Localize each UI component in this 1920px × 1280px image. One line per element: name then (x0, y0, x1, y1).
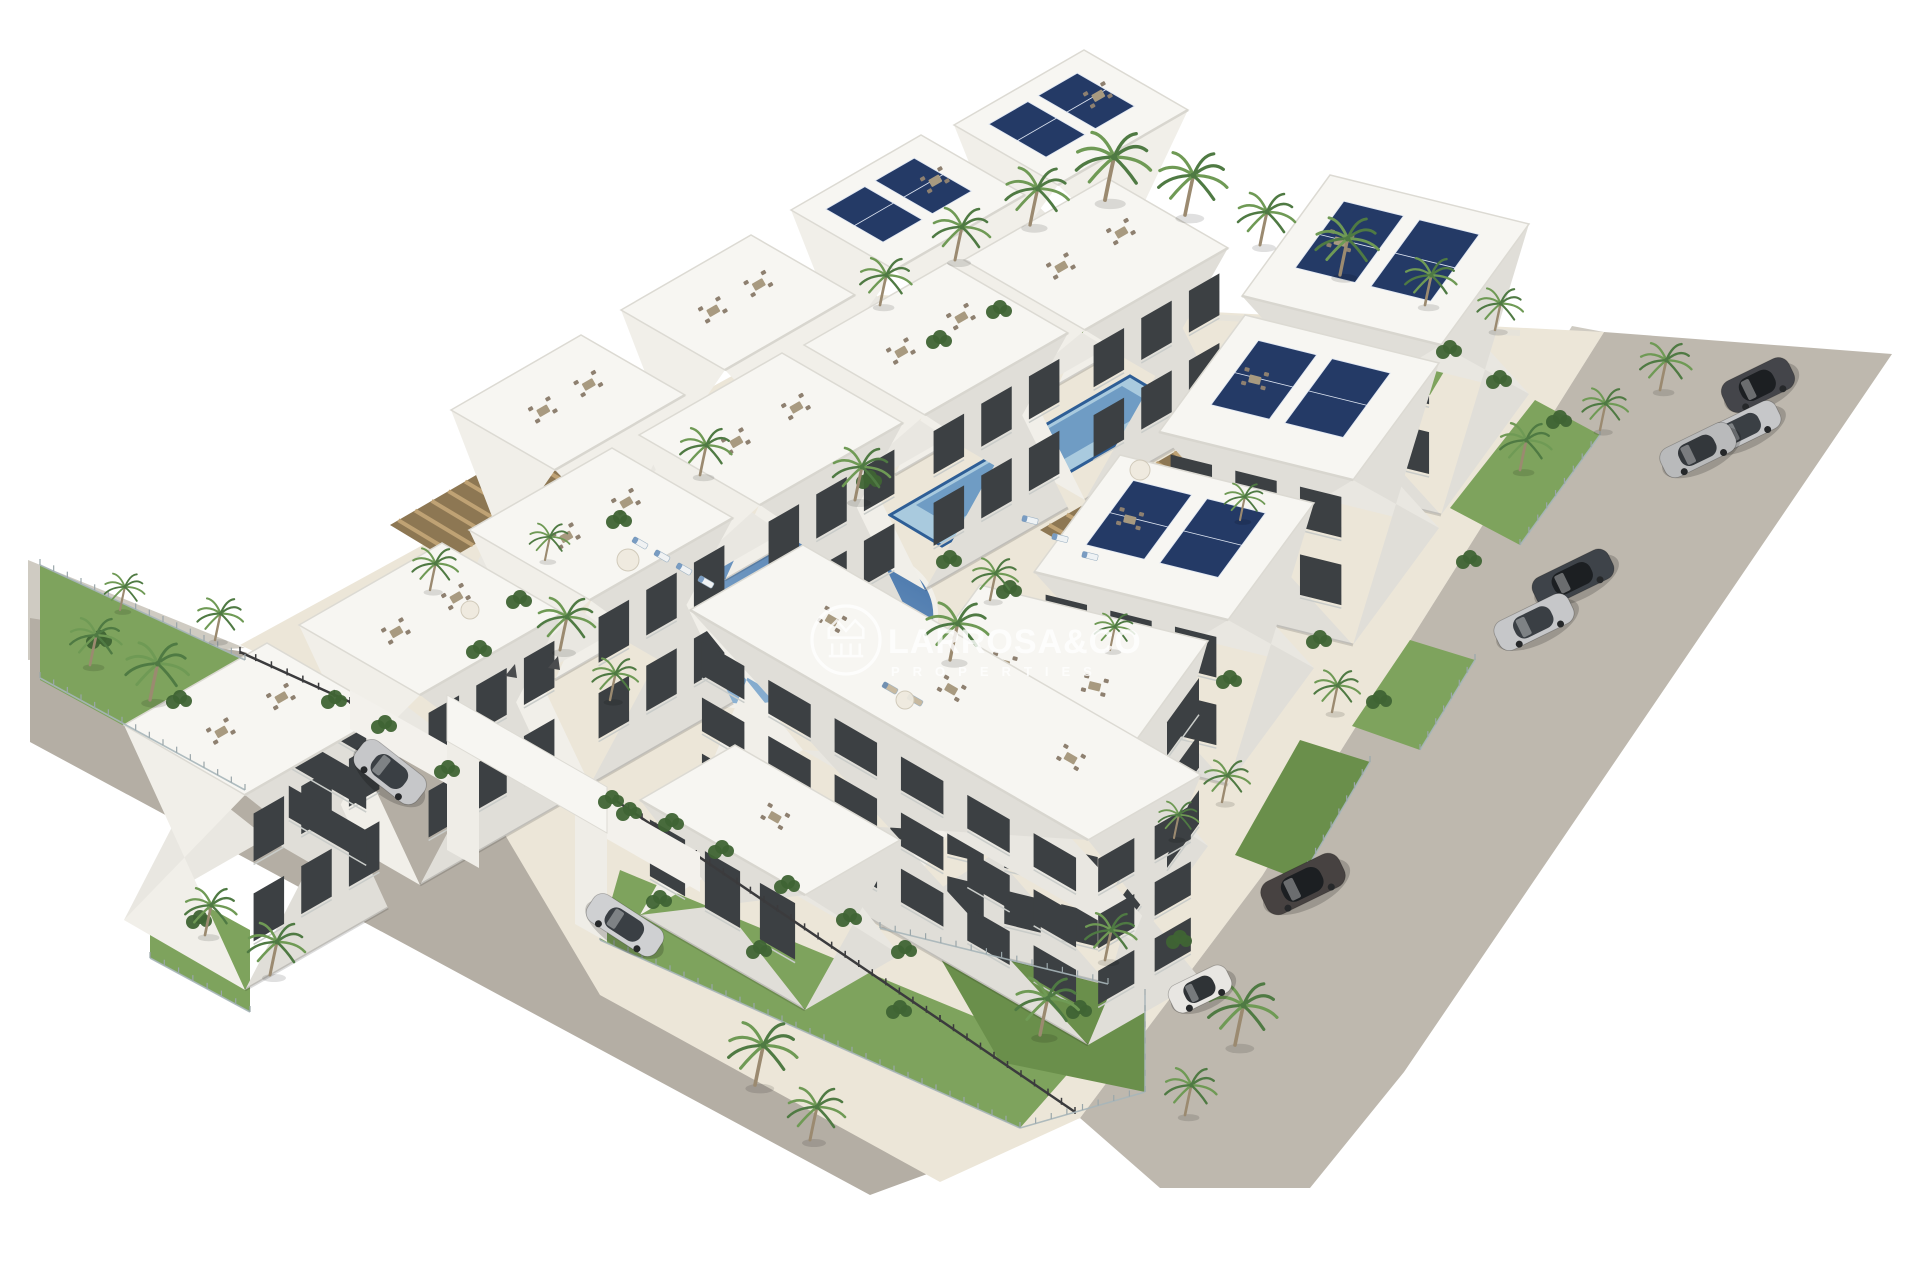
watermark-group: LARROSA&CO PROPERTIES (812, 606, 1142, 679)
watermark-brand-text: LARROSA&CO (888, 623, 1142, 661)
watermark: LARROSA&CO PROPERTIES (0, 0, 1920, 1280)
watermark-tagline-text: PROPERTIES (891, 664, 1105, 679)
crown-circle-icon (812, 606, 880, 674)
architectural-render: LARROSA&CO PROPERTIES (0, 0, 1920, 1280)
